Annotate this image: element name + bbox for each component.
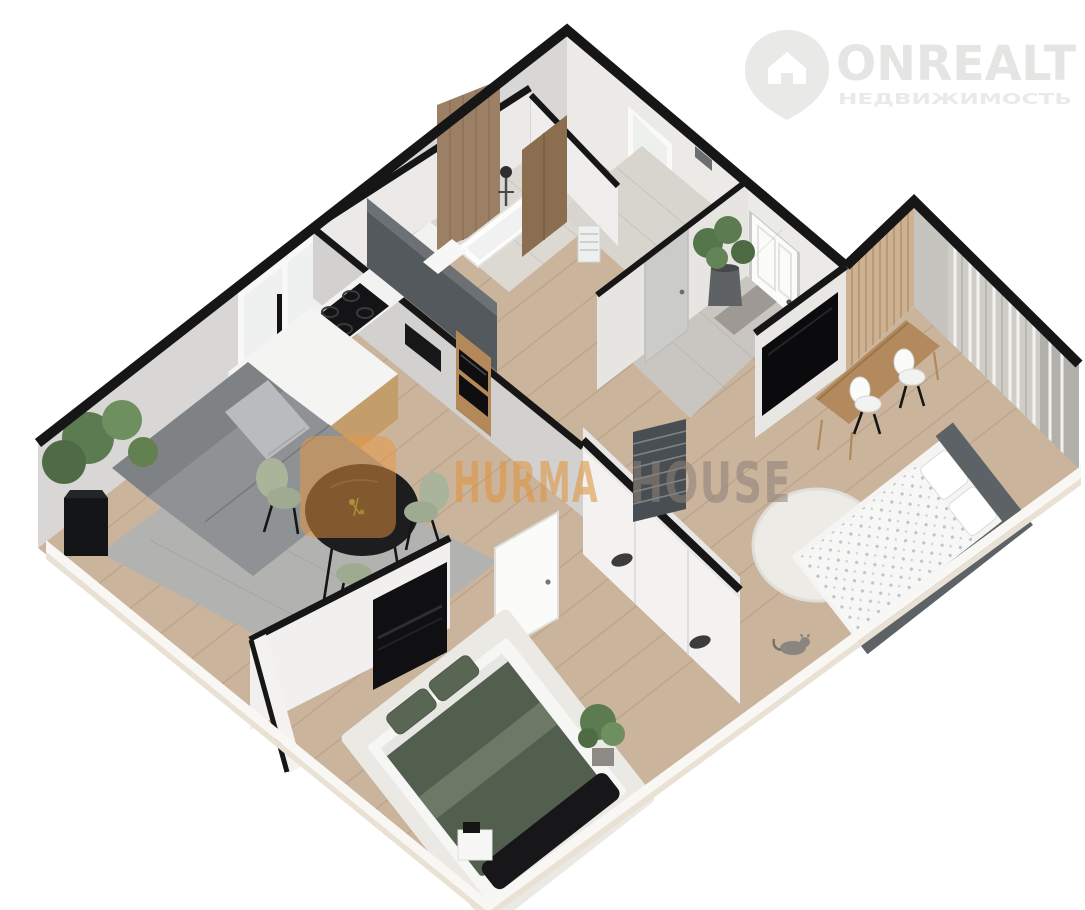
onrealt-logo: ONREALT НЕДВИЖИМОСТЬ — [745, 30, 1076, 120]
watermark-word1: HURMA — [453, 451, 599, 516]
logo-tagline: НЕДВИЖИМОСТЬ — [838, 90, 1072, 108]
laundry — [578, 226, 600, 262]
floorplan-render: HURMA HOUSE ONREALT НЕДВИЖИМОСТЬ — [0, 0, 1085, 910]
towel-rail — [578, 226, 600, 262]
watermark-word2: HOUSE — [630, 451, 792, 516]
hurma-square-icon — [300, 436, 396, 538]
logo-name: ONREALT — [836, 36, 1076, 92]
